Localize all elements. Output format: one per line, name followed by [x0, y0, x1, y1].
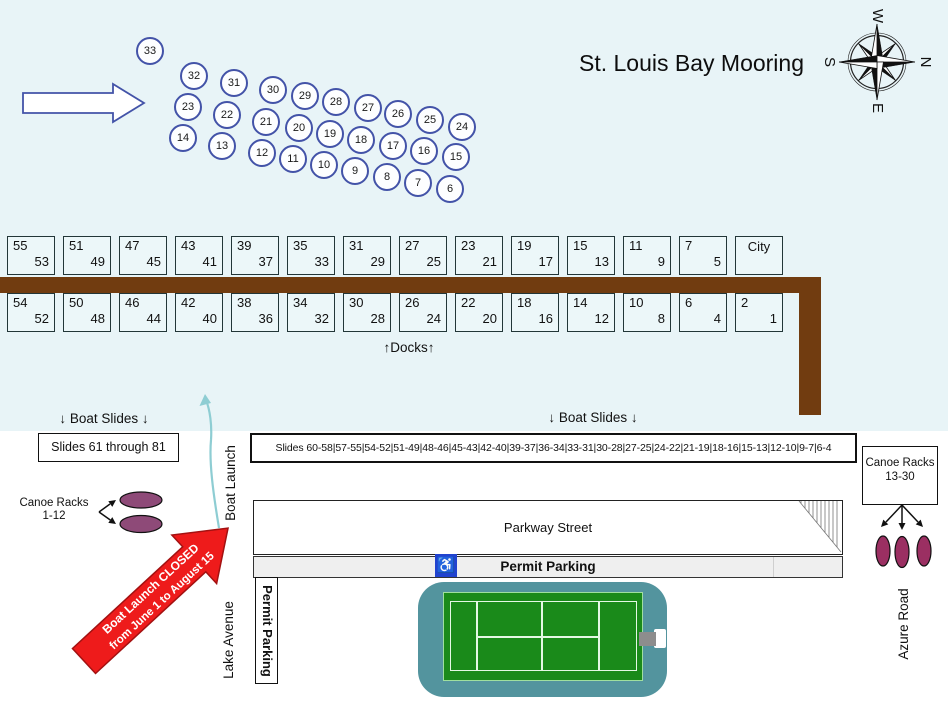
slip-number: 54	[8, 294, 54, 310]
slip-number: 4	[680, 311, 726, 326]
slip-number: 40	[176, 311, 222, 326]
slip-number: 23	[456, 237, 502, 253]
dock-slip-18-16: 1816	[511, 293, 559, 332]
slip-number: 7	[680, 237, 726, 253]
slip-number: 44	[120, 311, 166, 326]
permit-parking-strip-label: Permit Parking	[500, 559, 595, 574]
canoe-racks-left-line2: 1-12	[12, 510, 96, 523]
dock-slip-31-29: 3129	[343, 236, 391, 275]
slip-number: 38	[232, 294, 278, 310]
permit-parking-strip: Permit Parking	[253, 556, 843, 578]
slip-number: 36	[232, 311, 278, 326]
dock-slip-22-20: 2220	[455, 293, 503, 332]
boat-slides-label-left: ↓ Boat Slides ↓	[44, 411, 164, 426]
slip-number: 2	[736, 294, 782, 310]
canoe-racks-right-line1: Canoe Racks	[863, 456, 937, 470]
dock-slip-10-8: 108	[623, 293, 671, 332]
dock-slip-51-49: 5149	[63, 236, 111, 275]
dock-slip-11-9: 119	[623, 236, 671, 275]
dock-slip-55-53: 5553	[7, 236, 55, 275]
slip-number: City	[736, 237, 782, 254]
dock-slip-54-52: 5452	[7, 293, 55, 332]
lake-avenue-label: Lake Avenue	[221, 590, 237, 690]
slip-number: 41	[176, 254, 222, 269]
slip-number: 45	[120, 254, 166, 269]
docks-label: ↑Docks↑	[369, 340, 449, 355]
mooring-map: St. Louis Bay Mooring Buoys 333231302928…	[0, 0, 948, 702]
slip-number: 46	[120, 294, 166, 310]
canoe-racks-left-line1: Canoe Racks	[12, 497, 96, 510]
slip-number: 5	[680, 254, 726, 269]
slip-number: 32	[288, 311, 334, 326]
slip-number: 15	[568, 237, 614, 253]
slip-number: 39	[232, 237, 278, 253]
parking-divider	[773, 557, 774, 577]
dock-slip-15-13: 1513	[567, 236, 615, 275]
dock-slip-2-1: 21	[735, 293, 783, 332]
slip-number: 42	[176, 294, 222, 310]
handicap-icon: ♿	[435, 554, 457, 577]
dock-slip-35-33: 3533	[287, 236, 335, 275]
slip-number: 1	[736, 311, 782, 326]
dock-slip-39-37: 3937	[231, 236, 279, 275]
slip-number: 22	[456, 294, 502, 310]
slip-number: 26	[400, 294, 446, 310]
canoe-racks-left-label: Canoe Racks 1-12	[12, 497, 96, 523]
slip-number: 35	[288, 237, 334, 253]
tennis-center-line	[477, 636, 599, 638]
slip-number: 24	[400, 311, 446, 326]
dock-slip-6-4: 64	[679, 293, 727, 332]
slip-number: 50	[64, 294, 110, 310]
dock-slip-42-40: 4240	[175, 293, 223, 332]
permit-parking-vertical-box: Permit Parking	[255, 577, 278, 684]
slip-number: 52	[8, 311, 54, 326]
slip-number: 28	[344, 311, 390, 326]
boat-slides-label-right: ↓ Boat Slides ↓	[533, 410, 653, 425]
slides-60-4-label: Slides 60-58|57-55|54-52|51-49|48-46|45-…	[276, 442, 832, 454]
parkway-street-box: Parkway Street	[253, 500, 843, 555]
slip-number: 27	[400, 237, 446, 253]
canoe-racks-right-box: Canoe Racks 13-30	[862, 446, 938, 505]
slip-number: 19	[512, 237, 558, 253]
parkway-street-label: Parkway Street	[504, 520, 592, 535]
slip-number: 9	[624, 254, 670, 269]
slip-number: 30	[344, 294, 390, 310]
dock-slip-34-32: 3432	[287, 293, 335, 332]
slip-number: 31	[344, 237, 390, 253]
permit-parking-vertical-label: Permit Parking	[259, 581, 275, 681]
slip-number: 8	[624, 311, 670, 326]
slip-number: 53	[8, 254, 54, 269]
slip-number: 17	[512, 254, 558, 269]
slip-number: 21	[456, 254, 502, 269]
slip-number: 13	[568, 254, 614, 269]
slip-number: 25	[400, 254, 446, 269]
dock-slip-26-24: 2624	[399, 293, 447, 332]
dock-slip-47-45: 4745	[119, 236, 167, 275]
slip-number: 48	[64, 311, 110, 326]
slip-number: 16	[512, 311, 558, 326]
slip-number: 6	[680, 294, 726, 310]
slip-number: 37	[232, 254, 278, 269]
slip-number: 10	[624, 294, 670, 310]
slip-number: 49	[64, 254, 110, 269]
slip-number: 12	[568, 311, 614, 326]
dock-slip-46-44: 4644	[119, 293, 167, 332]
slip-number: 51	[64, 237, 110, 253]
dock-slip-30-28: 3028	[343, 293, 391, 332]
dock-slip-23-21: 2321	[455, 236, 503, 275]
bench-icon	[639, 632, 656, 646]
dock-slip-43-41: 4341	[175, 236, 223, 275]
boat-launch-label: Boat Launch	[223, 433, 239, 533]
canoe-racks-right-line2: 13-30	[863, 470, 937, 484]
slip-number: 55	[8, 237, 54, 253]
slides-61-81-label: Slides 61 through 81	[51, 440, 166, 454]
slip-number: 43	[176, 237, 222, 253]
dock-slip-7-5: 75	[679, 236, 727, 275]
slip-number: 29	[344, 254, 390, 269]
slip-number: 18	[512, 294, 558, 310]
dock-slip-14-12: 1412	[567, 293, 615, 332]
slides-60-4-box: Slides 60-58|57-55|54-52|51-49|48-46|45-…	[250, 433, 857, 463]
azure-road-label: Azure Road	[896, 574, 912, 674]
slip-number: 34	[288, 294, 334, 310]
dock-slip-City: City	[735, 236, 783, 275]
slip-number: 47	[120, 237, 166, 253]
slip-number: 11	[624, 237, 670, 253]
slip-number: 20	[456, 311, 502, 326]
dock-slip-27-25: 2725	[399, 236, 447, 275]
slip-number: 14	[568, 294, 614, 310]
dock-slip-19-17: 1917	[511, 236, 559, 275]
slip-number: 33	[288, 254, 334, 269]
slides-61-81-box: Slides 61 through 81	[38, 433, 179, 462]
dock-slip-38-36: 3836	[231, 293, 279, 332]
dock-slip-50-48: 5048	[63, 293, 111, 332]
